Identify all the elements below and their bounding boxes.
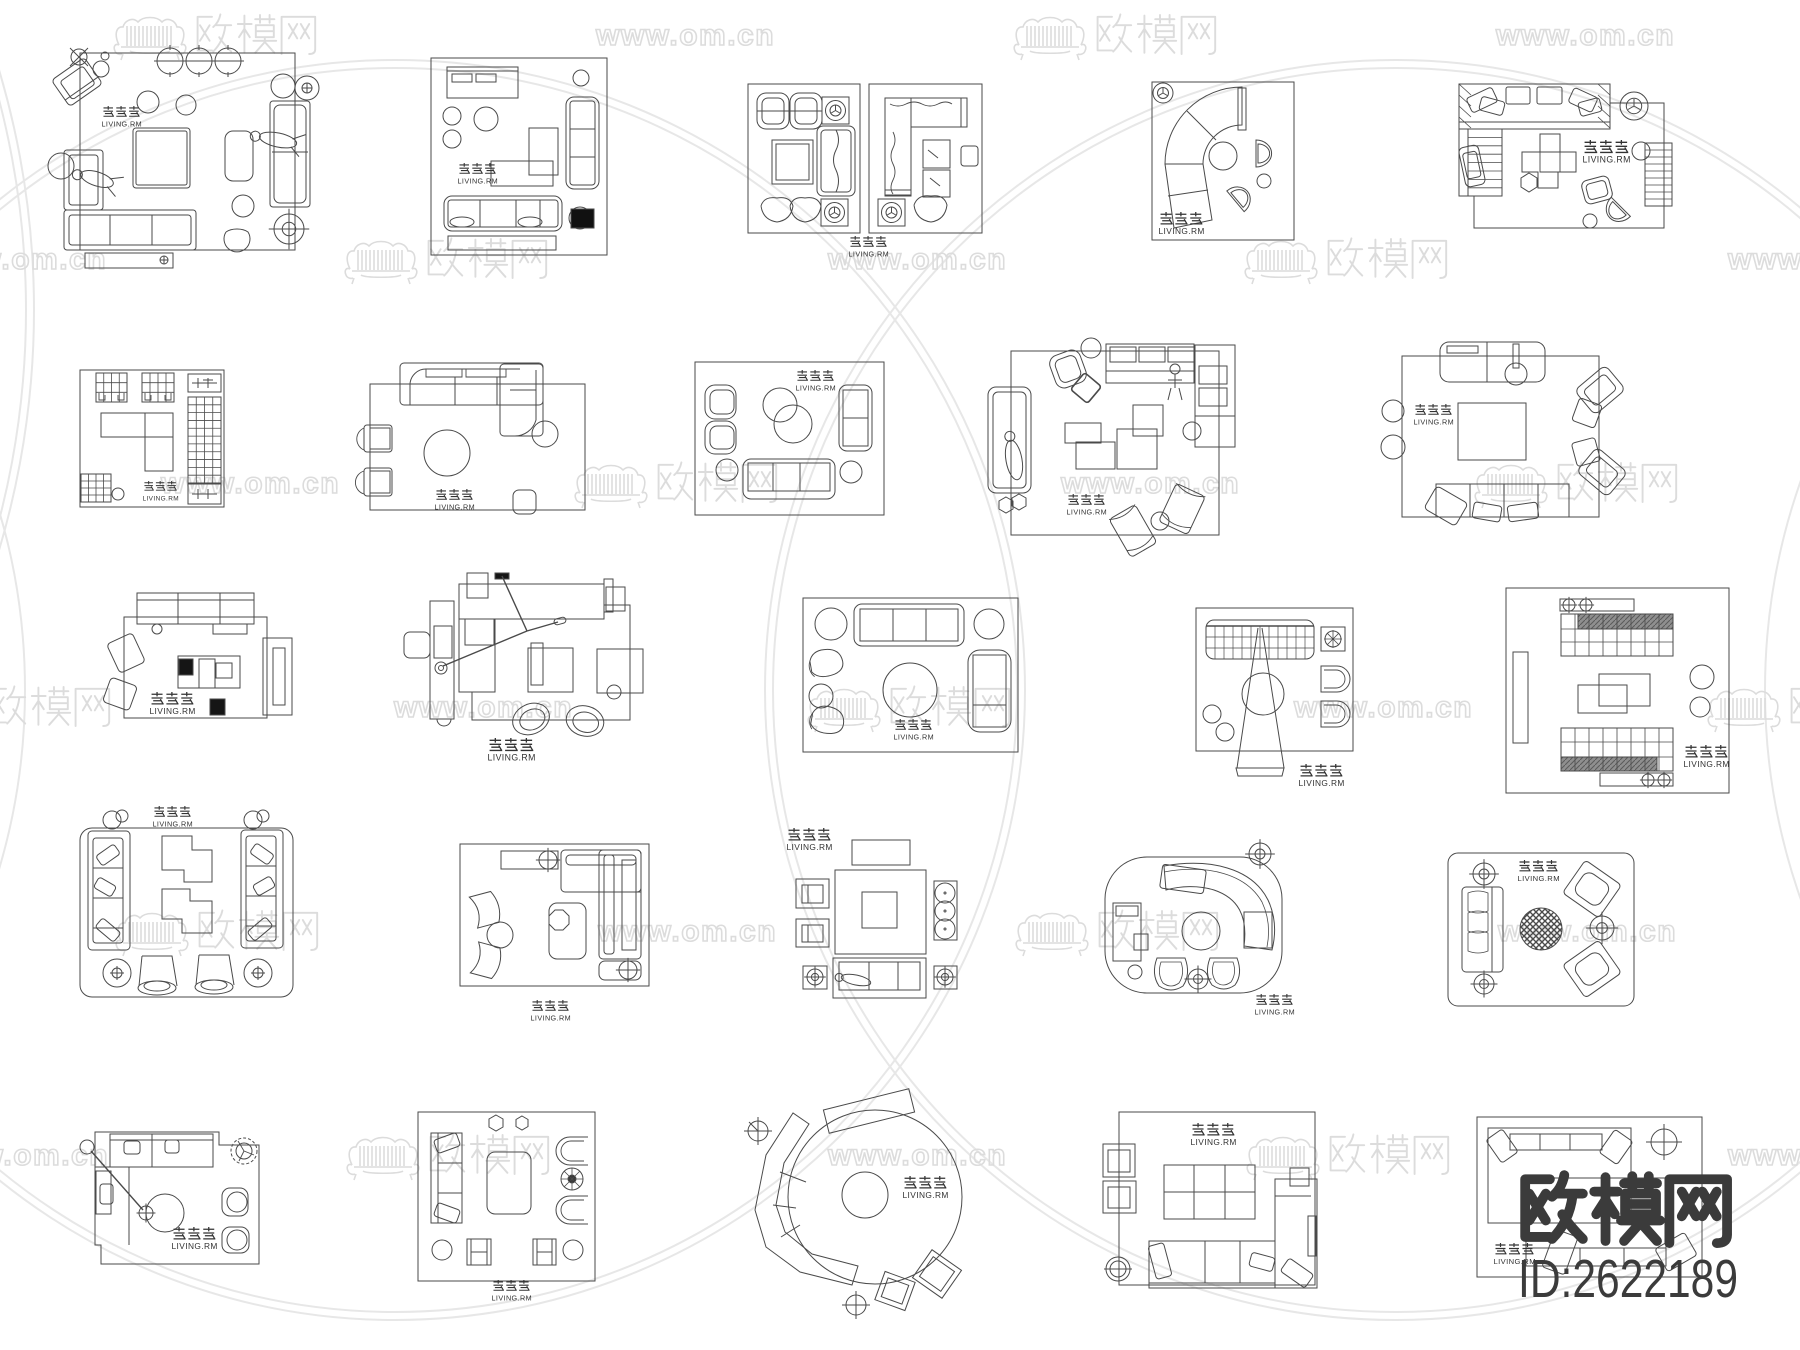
svg-text:LIVING.RM: LIVING.RM — [787, 842, 833, 852]
svg-text:www.om.cn: www.om.cn — [1727, 243, 1800, 276]
svg-text:LIVING.RM: LIVING.RM — [492, 1294, 533, 1303]
svg-text:LIVING.RM: LIVING.RM — [102, 120, 143, 129]
svg-text:LIVING.RM: LIVING.RM — [1583, 154, 1631, 164]
svg-text:LIVING.RM: LIVING.RM — [1414, 418, 1455, 427]
svg-text:LIVING.RM: LIVING.RM — [150, 706, 196, 716]
svg-text:LIVING.RM: LIVING.RM — [153, 820, 194, 829]
svg-text:LIVING.RM: LIVING.RM — [1191, 1137, 1237, 1147]
svg-text:LIVING.RM: LIVING.RM — [796, 384, 837, 393]
svg-text:www.om.cn: www.om.cn — [0, 243, 107, 276]
svg-text:www.om.cn: www.om.cn — [1060, 467, 1240, 500]
svg-text:LIVING.RM: LIVING.RM — [1159, 226, 1205, 236]
svg-text:LIVING.RM: LIVING.RM — [172, 1241, 218, 1251]
svg-text:LIVING.RM: LIVING.RM — [1067, 508, 1108, 517]
svg-text:LIVING.RM: LIVING.RM — [1518, 874, 1560, 883]
svg-text:LIVING.RM: LIVING.RM — [1299, 778, 1345, 788]
svg-text:LIVING.RM: LIVING.RM — [849, 250, 890, 259]
svg-text:LIVING.RM: LIVING.RM — [143, 496, 180, 503]
svg-text:LIVING.RM: LIVING.RM — [1684, 759, 1730, 769]
svg-text:www.om.cn: www.om.cn — [597, 915, 777, 948]
svg-text:LIVING.RM: LIVING.RM — [531, 1014, 572, 1023]
svg-text:www.om.cn: www.om.cn — [1727, 1139, 1800, 1172]
svg-text:www.om.cn: www.om.cn — [595, 19, 775, 52]
svg-text:www.om.cn: www.om.cn — [160, 467, 340, 500]
svg-text:LIVING.RM: LIVING.RM — [435, 503, 476, 512]
svg-text:LIVING.RM: LIVING.RM — [458, 177, 499, 186]
svg-text:LIVING.RM: LIVING.RM — [1255, 1008, 1296, 1017]
svg-text:www.om.cn: www.om.cn — [0, 1139, 109, 1172]
svg-text:www.om.cn: www.om.cn — [1495, 19, 1675, 52]
svg-text:LIVING.RM: LIVING.RM — [903, 1190, 949, 1200]
svg-text:LIVING.RM: LIVING.RM — [488, 752, 536, 762]
svg-text:ID:2622189: ID:2622189 — [1518, 1249, 1738, 1309]
svg-text:www.om.cn: www.om.cn — [827, 1139, 1007, 1172]
svg-text:LIVING.RM: LIVING.RM — [894, 733, 935, 742]
svg-text:www.om.cn: www.om.cn — [827, 243, 1007, 276]
svg-text:www.om.cn: www.om.cn — [1293, 691, 1473, 724]
